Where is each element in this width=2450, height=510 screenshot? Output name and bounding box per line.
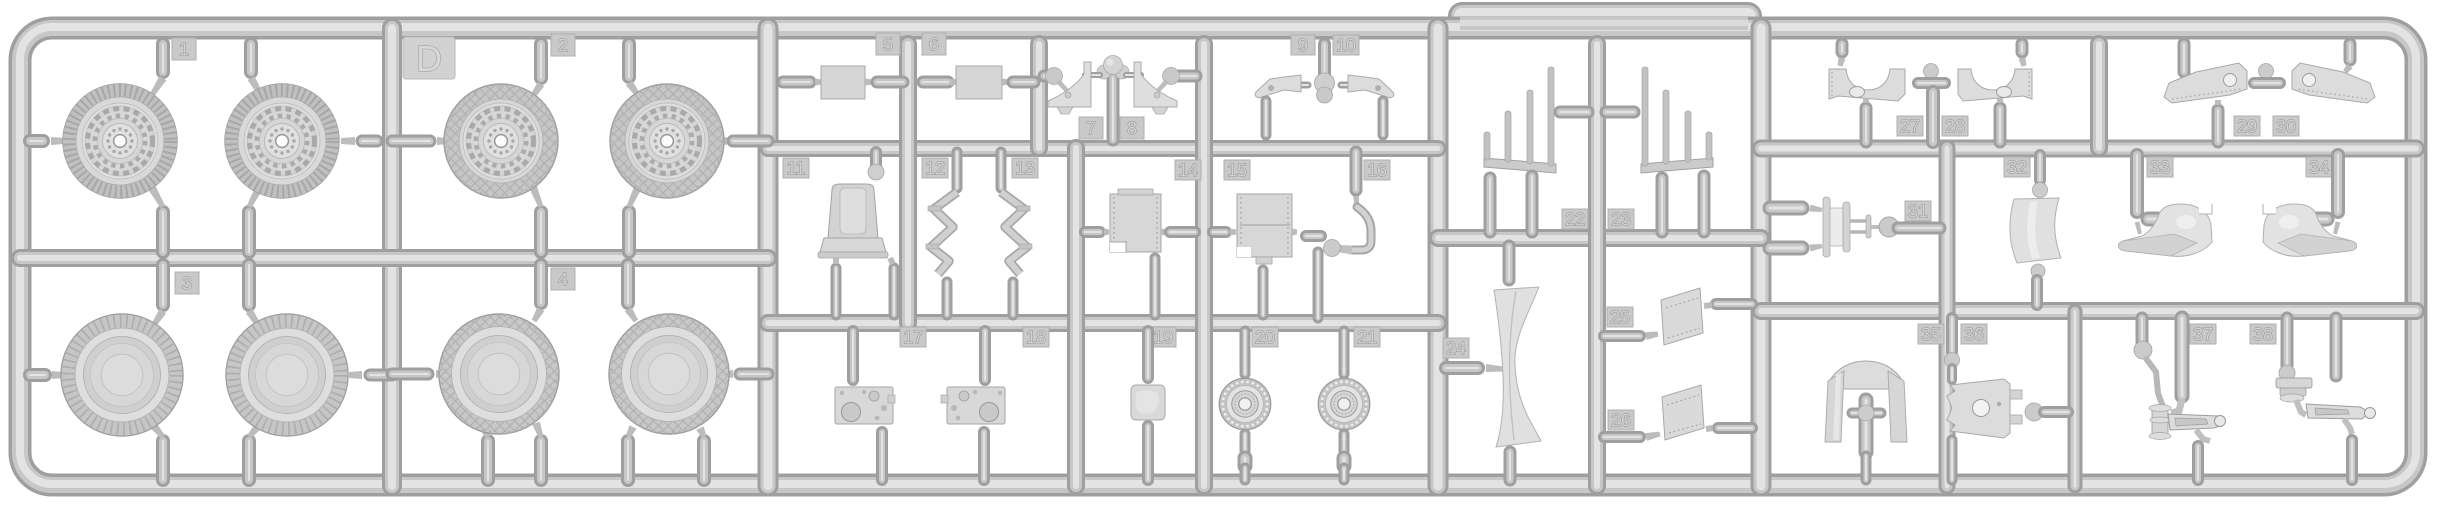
svg-text:23: 23 bbox=[1611, 209, 1631, 229]
svg-text:24: 24 bbox=[1446, 338, 1466, 358]
svg-text:13: 13 bbox=[1015, 158, 1035, 178]
svg-text:19: 19 bbox=[1153, 327, 1173, 347]
svg-text:2: 2 bbox=[558, 35, 568, 55]
svg-text:15: 15 bbox=[1227, 160, 1247, 180]
svg-text:5: 5 bbox=[883, 34, 893, 54]
svg-text:37: 37 bbox=[2193, 324, 2213, 344]
svg-text:29: 29 bbox=[2237, 116, 2257, 136]
svg-text:34: 34 bbox=[2309, 157, 2329, 177]
svg-text:33: 33 bbox=[2150, 157, 2170, 177]
svg-text:10: 10 bbox=[1336, 35, 1356, 55]
svg-text:9: 9 bbox=[1298, 35, 1308, 55]
svg-text:4: 4 bbox=[558, 269, 568, 289]
svg-text:26: 26 bbox=[1611, 410, 1631, 430]
svg-text:38: 38 bbox=[2253, 324, 2273, 344]
svg-text:32: 32 bbox=[2007, 157, 2027, 177]
svg-text:D: D bbox=[416, 38, 442, 79]
svg-text:25: 25 bbox=[1610, 307, 1630, 327]
svg-text:28: 28 bbox=[1945, 116, 1965, 136]
svg-text:18: 18 bbox=[1026, 327, 1046, 347]
svg-text:20: 20 bbox=[1255, 327, 1275, 347]
svg-text:30: 30 bbox=[2276, 116, 2296, 136]
svg-text:27: 27 bbox=[1900, 116, 1920, 136]
svg-text:11: 11 bbox=[787, 158, 806, 178]
svg-text:35: 35 bbox=[1921, 324, 1941, 344]
svg-text:22: 22 bbox=[1565, 209, 1585, 229]
svg-text:1: 1 bbox=[179, 39, 189, 59]
svg-text:14: 14 bbox=[1178, 160, 1198, 180]
svg-text:7: 7 bbox=[1086, 118, 1096, 138]
svg-text:12: 12 bbox=[925, 158, 945, 178]
svg-text:17: 17 bbox=[903, 327, 923, 347]
svg-text:16: 16 bbox=[1367, 160, 1387, 180]
svg-text:31: 31 bbox=[1908, 201, 1928, 221]
svg-text:6: 6 bbox=[929, 34, 939, 54]
svg-text:36: 36 bbox=[1964, 324, 1984, 344]
svg-text:21: 21 bbox=[1357, 327, 1377, 347]
svg-text:8: 8 bbox=[1127, 118, 1137, 138]
svg-text:3: 3 bbox=[182, 273, 192, 293]
